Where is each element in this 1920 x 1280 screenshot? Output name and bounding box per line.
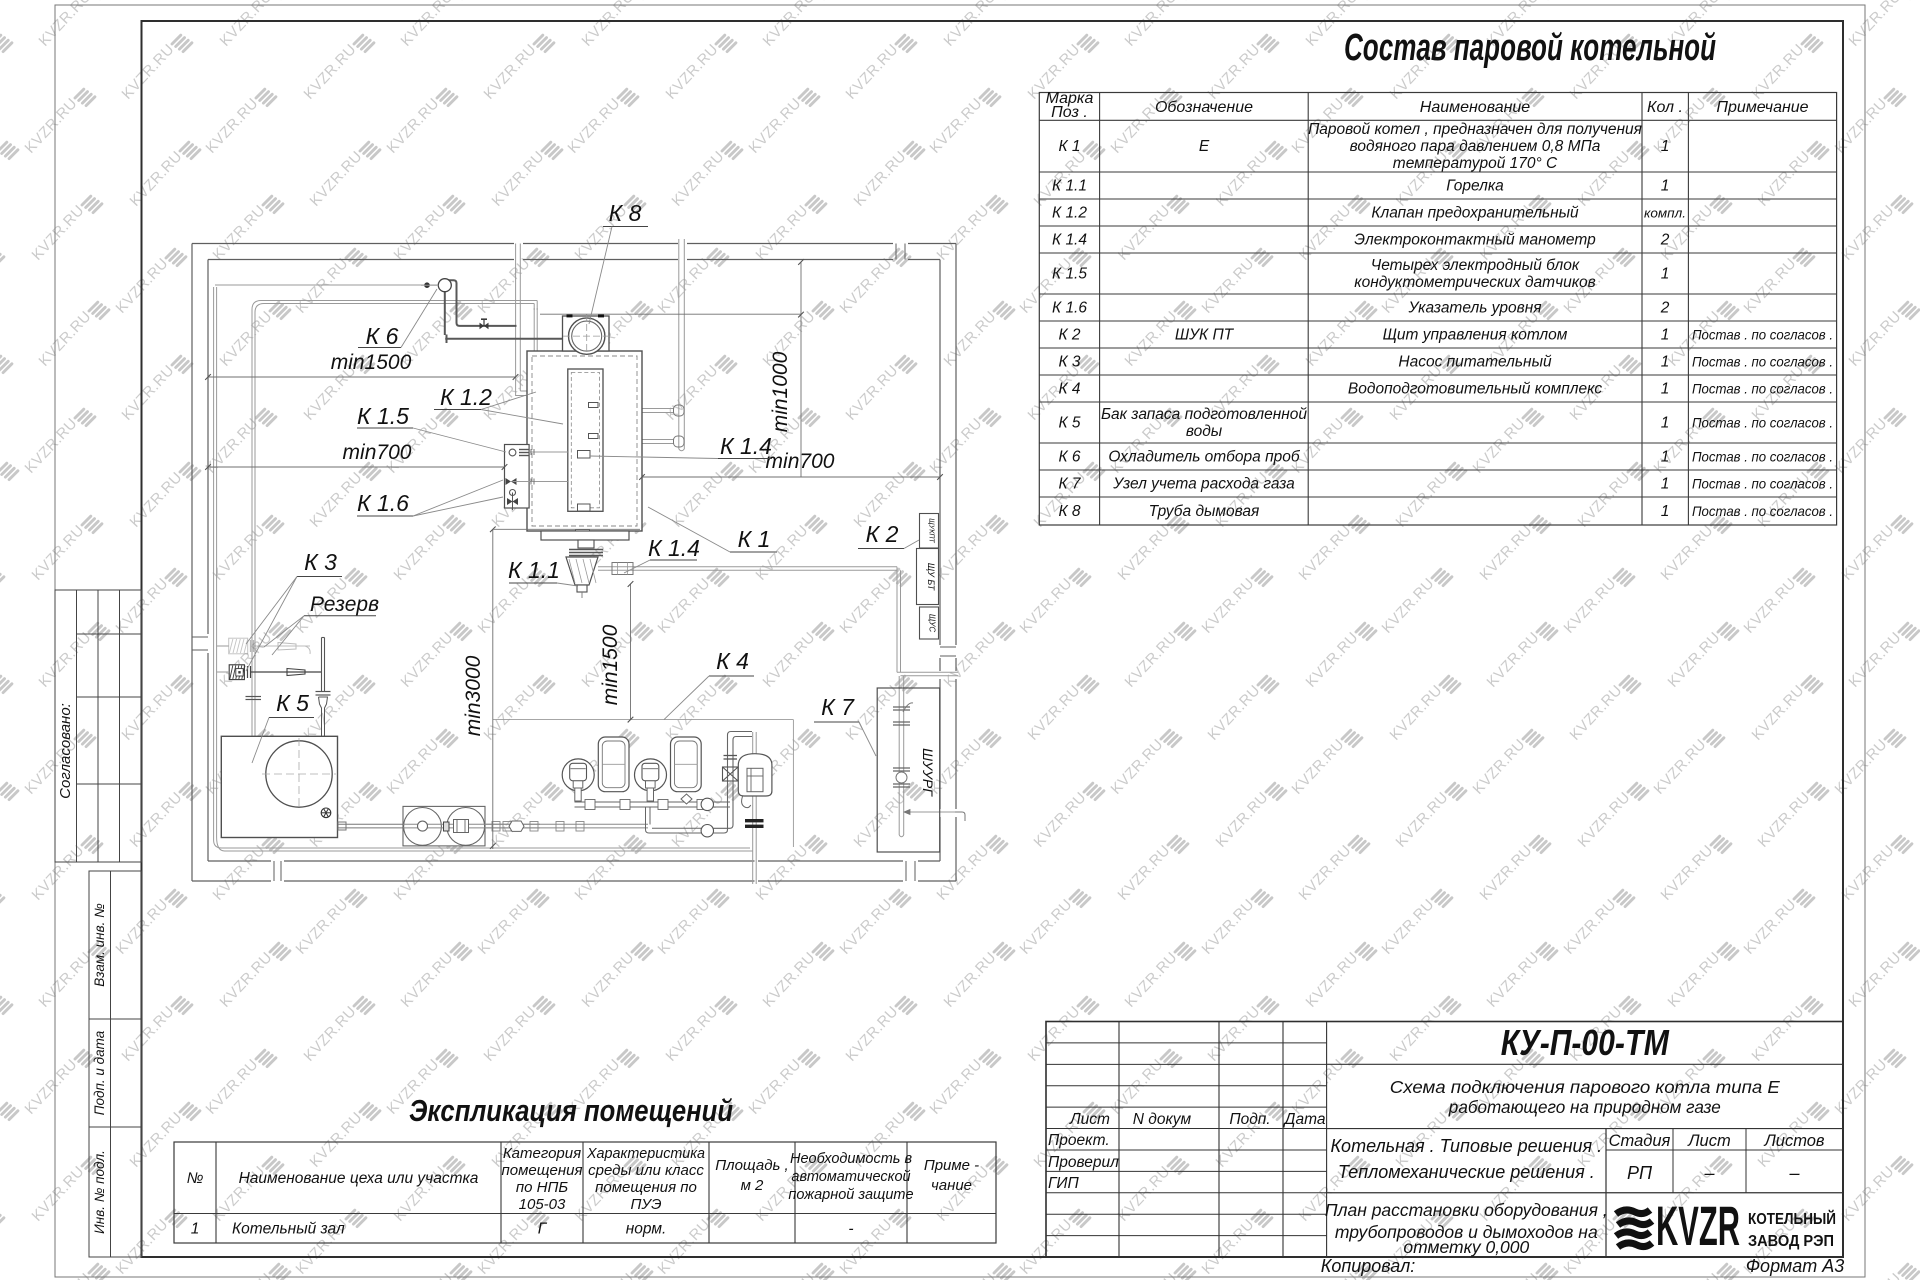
svg-text:KVZR.RU: KVZR.RU: [578, 1270, 637, 1280]
svg-text:Тепломеханические решения .: Тепломеханические решения .: [1338, 1162, 1595, 1182]
svg-text:KVZR.RU: KVZR.RU: [1831, 1056, 1890, 1118]
svg-text:1: 1: [1661, 266, 1670, 283]
svg-text:К 6: К 6: [1058, 449, 1080, 466]
svg-text:Указатель уровня: Указатель уровня: [1407, 300, 1541, 317]
svg-text:Стадия: Стадия: [1609, 1132, 1671, 1150]
svg-text:KVZR.RU: KVZR.RU: [1288, 736, 1347, 798]
svg-text:Постав . по согласов .: Постав . по согласов .: [1692, 450, 1833, 465]
svg-text:KVZR.RU: KVZR.RU: [1754, 148, 1813, 210]
svg-text:К 8: К 8: [1058, 503, 1080, 520]
svg-text:№: №: [187, 1170, 204, 1187]
svg-text:KVZR.RU: KVZR.RU: [1657, 842, 1716, 904]
svg-text:KVZR.RU: KVZR.RU: [126, 1109, 185, 1171]
svg-text:KVZR.RU: KVZR.RU: [1114, 522, 1173, 584]
svg-text:пожарной защите: пожарной защите: [788, 1187, 913, 1203]
svg-text:min1000: min1000: [769, 351, 792, 432]
svg-text:KVZR.RU: KVZR.RU: [662, 362, 721, 424]
svg-text:KVZR.RU: KVZR.RU: [118, 1003, 177, 1065]
svg-text:KVZR.RU: KVZR.RU: [306, 1109, 365, 1171]
svg-text:Поз .: Поз .: [1051, 104, 1088, 121]
svg-text:KVZR.RU: KVZR.RU: [1845, 308, 1904, 370]
svg-text:Лист: Лист: [1687, 1132, 1730, 1150]
svg-text:Лист: Лист: [1069, 1111, 1110, 1128]
svg-text:KVZR.RU: KVZR.RU: [383, 736, 442, 798]
svg-text:KVZR.RU: KVZR.RU: [300, 41, 359, 103]
svg-text:KVZR.RU: KVZR.RU: [1748, 1003, 1807, 1065]
svg-text:Проект.: Проект.: [1048, 1132, 1110, 1149]
svg-text:Труба дымовая: Труба дымовая: [1149, 503, 1260, 520]
svg-text:KVZR.RU: KVZR.RU: [842, 41, 901, 103]
svg-text:KVZR.RU: KVZR.RU: [35, 949, 94, 1011]
svg-text:KVZR.RU: KVZR.RU: [836, 1216, 895, 1278]
svg-text:KVZR.RU: KVZR.RU: [1016, 896, 1075, 958]
svg-text:KVZR.RU: KVZR.RU: [1024, 682, 1083, 744]
svg-text:KVZR.RU: KVZR.RU: [202, 415, 261, 477]
svg-text:KVZR.RU: KVZR.RU: [480, 41, 539, 103]
svg-text:KVZR.RU: KVZR.RU: [662, 41, 721, 103]
svg-text:KVZR.RU: KVZR.RU: [1838, 522, 1897, 584]
svg-text:KVZR.RU: KVZR.RU: [209, 522, 268, 584]
svg-text:К 1.2: К 1.2: [1052, 205, 1087, 222]
svg-text:Схема подключения парового кот: Схема подключения парового котла типа Е: [1390, 1077, 1780, 1097]
svg-text:KVZR.RU: KVZR.RU: [1469, 415, 1528, 477]
svg-text:KVZR.RU: KVZR.RU: [1302, 949, 1361, 1011]
svg-text:KVZR.RU: KVZR.RU: [1574, 148, 1633, 210]
svg-text:-: -: [848, 1220, 853, 1237]
svg-text:Кол .: Кол .: [1647, 99, 1683, 116]
svg-text:KVZR: KVZR: [1656, 1194, 1740, 1257]
svg-text:1: 1: [1661, 138, 1670, 155]
svg-text:KVZR.RU: KVZR.RU: [126, 789, 185, 851]
svg-text:KVZR.RU: KVZR.RU: [488, 148, 547, 210]
svg-text:KVZR.RU: KVZR.RU: [1748, 682, 1807, 744]
svg-text:KVZR.RU: KVZR.RU: [1740, 255, 1799, 317]
svg-text:Насос питательный: Насос питательный: [1398, 354, 1552, 371]
svg-text:KVZR.RU: KVZR.RU: [745, 95, 804, 157]
svg-text:KVZR.RU: KVZR.RU: [1748, 41, 1807, 103]
svg-text:помещения по: помещения по: [595, 1179, 697, 1196]
svg-text:KVZR.RU: KVZR.RU: [397, 949, 456, 1011]
svg-text:Постав . по согласов .: Постав . по согласов .: [1692, 416, 1833, 431]
svg-text:1: 1: [1661, 178, 1670, 195]
svg-text:Инв. № подл.: Инв. № подл.: [92, 1150, 107, 1234]
svg-text:Постав . по согласов .: Постав . по согласов .: [1692, 328, 1833, 343]
svg-text:KVZR.RU: KVZR.RU: [1107, 1056, 1166, 1118]
svg-text:KVZR.RU: KVZR.RU: [474, 575, 533, 637]
svg-text:Формат А3: Формат А3: [1746, 1256, 1845, 1276]
svg-text:KVZR.RU: KVZR.RU: [1386, 1003, 1445, 1065]
svg-text:KVZR.RU: KVZR.RU: [397, 629, 456, 691]
svg-text:Постав . по согласов .: Постав . по согласов .: [1692, 382, 1833, 397]
svg-text:KVZR.RU: KVZR.RU: [1302, 629, 1361, 691]
svg-text:KVZR.RU: KVZR.RU: [35, 0, 94, 50]
svg-text:К 1.1: К 1.1: [508, 557, 560, 583]
svg-text:KVZR.RU: KVZR.RU: [126, 469, 185, 531]
svg-text:KVZR.RU: KVZR.RU: [1198, 575, 1257, 637]
svg-text:Проверил: Проверил: [1048, 1154, 1119, 1171]
svg-text:ЩУС: ЩУС: [928, 614, 937, 632]
svg-text:К 1.4: К 1.4: [648, 535, 700, 561]
svg-text:Взам. инв. №: Взам. инв. №: [92, 903, 107, 987]
svg-text:KVZR.RU: KVZR.RU: [1657, 522, 1716, 584]
svg-text:KVZR.RU: KVZR.RU: [836, 575, 895, 637]
svg-text:KVZR.RU: KVZR.RU: [1392, 469, 1451, 531]
svg-text:KVZR.RU: KVZR.RU: [933, 842, 992, 904]
svg-text:KVZR.RU: KVZR.RU: [1574, 789, 1633, 851]
svg-text:КУ-П-00-ТМ: КУ-П-00-ТМ: [1501, 1022, 1670, 1063]
svg-text:К 1.5: К 1.5: [1052, 266, 1087, 283]
svg-text:KVZR.RU: KVZR.RU: [1845, 0, 1904, 50]
svg-text:KVZR.RU: KVZR.RU: [1212, 789, 1271, 851]
svg-text:ГИП: ГИП: [1048, 1175, 1080, 1192]
svg-text:Подп. и дата: Подп. и дата: [92, 1030, 107, 1115]
svg-text:Электроконтактный манометр: Электроконтактный манометр: [1354, 232, 1596, 249]
svg-text:KVZR.RU: KVZR.RU: [1392, 789, 1451, 851]
svg-text:Резерв: Резерв: [310, 593, 379, 616]
svg-text:К 3: К 3: [1058, 354, 1080, 371]
svg-text:К 1: К 1: [738, 526, 771, 552]
svg-text:KVZR.RU: KVZR.RU: [1204, 682, 1263, 744]
svg-text:KVZR.RU: KVZR.RU: [1740, 575, 1799, 637]
svg-text:min700: min700: [343, 441, 412, 464]
svg-text:Обозначение: Обозначение: [1155, 99, 1253, 116]
svg-text:KVZR.RU: KVZR.RU: [300, 1003, 359, 1065]
svg-text:Постав . по согласов .: Постав . по согласов .: [1692, 504, 1833, 519]
svg-text:Копировал:: Копировал:: [1321, 1256, 1416, 1276]
svg-text:KVZR.RU: KVZR.RU: [1107, 415, 1166, 477]
svg-text:Состав паровой котельной: Состав паровой котельной: [1344, 27, 1716, 69]
svg-text:KVZR.RU: KVZR.RU: [209, 202, 268, 264]
svg-text:KVZR.RU: KVZR.RU: [578, 0, 637, 50]
svg-text:–: –: [1788, 1163, 1800, 1183]
svg-text:KVZR.RU: KVZR.RU: [390, 522, 449, 584]
svg-text:1: 1: [1661, 476, 1670, 493]
svg-text:К 8: К 8: [609, 200, 642, 226]
svg-text:Приме -: Приме -: [924, 1157, 979, 1174]
svg-text:воды: воды: [1186, 423, 1223, 440]
svg-text:К 3: К 3: [304, 549, 337, 575]
svg-text:KVZR.RU: KVZR.RU: [118, 41, 177, 103]
svg-text:min1500: min1500: [331, 351, 412, 374]
svg-text:KVZR.RU: KVZR.RU: [0, 148, 4, 210]
svg-text:KVZR.RU: KVZR.RU: [752, 842, 811, 904]
svg-text:по НПБ: по НПБ: [516, 1179, 568, 1196]
svg-text:KVZR.RU: KVZR.RU: [28, 202, 87, 264]
svg-text:KVZR.RU: KVZR.RU: [202, 1056, 261, 1118]
svg-text:Листов: Листов: [1763, 1132, 1824, 1150]
svg-text:KVZR.RU: KVZR.RU: [216, 0, 275, 50]
svg-text:КОТЕЛЬНЫЙ: КОТЕЛЬНЫЙ: [1748, 1210, 1836, 1228]
svg-text:К 1.6: К 1.6: [1052, 300, 1087, 317]
svg-text:К 1.4: К 1.4: [1052, 232, 1087, 249]
svg-text:температурой 170° С: температурой 170° С: [1393, 155, 1558, 172]
svg-text:Е: Е: [1199, 138, 1210, 155]
svg-text:KVZR.RU: KVZR.RU: [1295, 202, 1354, 264]
svg-text:м 2: м 2: [741, 1177, 764, 1194]
svg-text:KVZR.RU: KVZR.RU: [933, 522, 992, 584]
svg-text:KVZR.RU: KVZR.RU: [940, 308, 999, 370]
svg-text:отметку 0,000: отметку 0,000: [1403, 1237, 1529, 1257]
svg-text:Постав . по согласов .: Постав . по согласов .: [1692, 355, 1833, 370]
svg-text:Г: Г: [538, 1220, 548, 1237]
svg-text:KVZR.RU: KVZR.RU: [668, 469, 727, 531]
svg-text:KVZR.RU: KVZR.RU: [1838, 842, 1897, 904]
svg-text:Охладитель отбора проб: Охладитель отбора проб: [1108, 449, 1300, 466]
svg-text:KVZR.RU: KVZR.RU: [216, 1270, 275, 1280]
svg-text:KVZR.RU: KVZR.RU: [0, 469, 4, 531]
svg-text:KVZR.RU: KVZR.RU: [1121, 629, 1180, 691]
svg-text:KVZR.RU: KVZR.RU: [1483, 629, 1542, 691]
svg-text:К 7: К 7: [821, 694, 855, 720]
svg-text:KVZR.RU: KVZR.RU: [1198, 896, 1257, 958]
svg-text:KVZR.RU: KVZR.RU: [1114, 842, 1173, 904]
svg-text:KVZR.RU: KVZR.RU: [564, 95, 623, 157]
svg-text:1: 1: [1661, 415, 1670, 432]
svg-text:KVZR.RU: KVZR.RU: [668, 789, 727, 851]
svg-text:компл.: компл.: [1644, 206, 1686, 221]
svg-text:К 4: К 4: [1058, 381, 1080, 398]
svg-text:KVZR.RU: KVZR.RU: [1483, 1270, 1542, 1280]
svg-text:KVZR.RU: KVZR.RU: [836, 255, 895, 317]
svg-text:KVZR.RU: KVZR.RU: [1740, 896, 1799, 958]
svg-text:KVZR.RU: KVZR.RU: [1030, 789, 1089, 851]
svg-text:KVZR.RU: KVZR.RU: [118, 682, 177, 744]
svg-text:KVZR.RU: KVZR.RU: [1664, 629, 1723, 691]
svg-text:Котельная . Типовые решения .: Котельная . Типовые решения .: [1330, 1136, 1602, 1156]
svg-text:Наименование: Наименование: [1420, 99, 1531, 116]
svg-text:KVZR.RU: KVZR.RU: [1378, 896, 1437, 958]
svg-text:KVZR.RU: KVZR.RU: [35, 629, 94, 691]
svg-text:KVZR.RU: KVZR.RU: [1831, 415, 1890, 477]
svg-text:KVZR.RU: KVZR.RU: [1560, 896, 1619, 958]
svg-text:ЩУ БТ: ЩУ БТ: [926, 563, 936, 592]
svg-text:1: 1: [191, 1220, 200, 1237]
svg-text:KVZR.RU: KVZR.RU: [21, 415, 80, 477]
svg-text:KVZR.RU: KVZR.RU: [759, 949, 818, 1011]
svg-text:KVZR.RU: KVZR.RU: [1664, 1270, 1723, 1280]
svg-text:KVZR.RU: KVZR.RU: [1664, 949, 1723, 1011]
svg-text:min3000: min3000: [462, 655, 485, 736]
svg-text:К 2: К 2: [866, 521, 899, 547]
svg-text:KVZR.RU: KVZR.RU: [488, 789, 547, 851]
svg-text:KVZR.RU: KVZR.RU: [1386, 682, 1445, 744]
svg-text:KVZR.RU: KVZR.RU: [474, 255, 533, 317]
svg-text:1: 1: [1661, 449, 1670, 466]
svg-text:KVZR.RU: KVZR.RU: [1560, 575, 1619, 637]
svg-text:KVZR.RU: KVZR.RU: [1114, 1163, 1173, 1225]
svg-text:KVZR.RU: KVZR.RU: [383, 95, 442, 157]
svg-text:KVZR.RU: KVZR.RU: [28, 1163, 87, 1225]
svg-text:KVZR.RU: KVZR.RU: [1469, 736, 1528, 798]
svg-text:KVZR.RU: KVZR.RU: [1754, 789, 1813, 851]
svg-text:KVZR.RU: KVZR.RU: [28, 522, 87, 584]
svg-text:К 4: К 4: [716, 648, 749, 674]
svg-text:KVZR.RU: KVZR.RU: [397, 1270, 456, 1280]
svg-text:норм.: норм.: [626, 1220, 667, 1237]
svg-text:KVZR.RU: KVZR.RU: [1016, 575, 1075, 637]
svg-text:KVZR.RU: KVZR.RU: [1378, 575, 1437, 637]
svg-text:Горелка: Горелка: [1446, 178, 1504, 195]
svg-text:Постав . по согласов .: Постав . по согласов .: [1692, 477, 1833, 492]
svg-text:KVZR.RU: KVZR.RU: [1476, 522, 1535, 584]
svg-text:KVZR.RU: KVZR.RU: [0, 1109, 4, 1171]
svg-text:KVZR.RU: KVZR.RU: [1114, 202, 1173, 264]
svg-text:KVZR.RU: KVZR.RU: [480, 682, 539, 744]
svg-text:К 6: К 6: [366, 323, 399, 349]
svg-text:К 7: К 7: [1058, 476, 1081, 493]
svg-text:KVZR.RU: KVZR.RU: [1198, 255, 1257, 317]
svg-text:KVZR.RU: KVZR.RU: [752, 202, 811, 264]
svg-text:N докум: N докум: [1133, 1111, 1192, 1128]
svg-text:KVZR.RU: KVZR.RU: [1845, 629, 1904, 691]
svg-text:ЗАВОД РЭП: ЗАВОД РЭП: [1748, 1233, 1834, 1250]
svg-text:KVZR.RU: KVZR.RU: [1483, 949, 1542, 1011]
svg-text:К 1.4: К 1.4: [720, 433, 772, 459]
svg-text:KVZR.RU: KVZR.RU: [1476, 842, 1535, 904]
svg-text:KVZR.RU: KVZR.RU: [1107, 736, 1166, 798]
svg-text:К 1.1: К 1.1: [1052, 178, 1087, 195]
svg-text:KVZR.RU: KVZR.RU: [654, 896, 713, 958]
svg-text:KVZR.RU: KVZR.RU: [202, 95, 261, 157]
svg-text:ЩУКПТ: ЩУКПТ: [928, 518, 935, 543]
svg-text:KVZR.RU: KVZR.RU: [0, 789, 4, 851]
svg-text:1: 1: [1661, 327, 1670, 344]
svg-text:KVZR.RU: KVZR.RU: [1650, 736, 1709, 798]
svg-text:работающего на природном газе: работающего на природном газе: [1448, 1097, 1721, 1117]
svg-text:KVZR.RU: KVZR.RU: [1845, 1270, 1904, 1280]
svg-text:Подп.: Подп.: [1229, 1111, 1270, 1128]
svg-text:Водоподготовительный комплекс: Водоподготовительный комплекс: [1348, 381, 1602, 398]
svg-text:KVZR.RU: KVZR.RU: [926, 1056, 985, 1118]
svg-text:К 1.2: К 1.2: [440, 384, 492, 410]
svg-text:ПУЭ: ПУЭ: [630, 1196, 661, 1213]
svg-text:KVZR.RU: KVZR.RU: [836, 896, 895, 958]
svg-text:KVZR.RU: KVZR.RU: [397, 0, 456, 50]
svg-text:KVZR.RU: KVZR.RU: [1121, 308, 1180, 370]
svg-text:Примечание: Примечание: [1716, 99, 1808, 116]
svg-text:К 5: К 5: [276, 690, 309, 716]
svg-text:Характеристика: Характеристика: [586, 1145, 705, 1162]
svg-text:Бак запаса подготовленной: Бак запаса подготовленной: [1101, 406, 1307, 423]
svg-text:Площадь ,: Площадь ,: [715, 1157, 788, 1174]
svg-text:KVZR.RU: KVZR.RU: [35, 1270, 94, 1280]
svg-text:KVZR.RU: KVZR.RU: [1831, 95, 1890, 157]
svg-text:чание: чание: [931, 1177, 972, 1194]
svg-text:KVZR.RU: KVZR.RU: [842, 1003, 901, 1065]
svg-text:KVZR.RU: KVZR.RU: [292, 255, 351, 317]
svg-text:Узел учета расхода газа: Узел учета расхода газа: [1112, 476, 1295, 493]
svg-text:KVZR.RU: KVZR.RU: [1566, 682, 1625, 744]
svg-text:KVZR.RU: KVZR.RU: [28, 842, 87, 904]
svg-text:ШУК ПТ: ШУК ПТ: [1175, 327, 1235, 344]
svg-text:min1500: min1500: [599, 624, 622, 705]
svg-text:KVZR.RU: KVZR.RU: [1204, 1003, 1263, 1065]
svg-text:К 1.5: К 1.5: [357, 403, 409, 429]
svg-text:KVZR.RU: KVZR.RU: [1288, 415, 1347, 477]
svg-text:KVZR.RU: KVZR.RU: [216, 949, 275, 1011]
svg-text:К 2: К 2: [1058, 327, 1080, 344]
svg-text:KVZR.RU: KVZR.RU: [126, 148, 185, 210]
svg-text:KVZR.RU: KVZR.RU: [390, 202, 449, 264]
svg-text:KVZR.RU: KVZR.RU: [1198, 1216, 1257, 1278]
svg-text:KVZR.RU: KVZR.RU: [1295, 842, 1354, 904]
svg-text:KVZR.RU: KVZR.RU: [1121, 949, 1180, 1011]
svg-text:KVZR.RU: KVZR.RU: [940, 949, 999, 1011]
svg-text:1: 1: [1661, 354, 1670, 371]
svg-text:KVZR.RU: KVZR.RU: [759, 629, 818, 691]
svg-text:KVZR.RU: KVZR.RU: [35, 308, 94, 370]
svg-text:Паровой котел , предназначен д: Паровой котел , предназначен для получен…: [1308, 121, 1642, 138]
svg-text:KVZR.RU: KVZR.RU: [1121, 0, 1180, 50]
svg-text:KVZR.RU: KVZR.RU: [578, 949, 637, 1011]
svg-text:KVZR.RU: KVZR.RU: [474, 1216, 533, 1278]
svg-text:KVZR.RU: KVZR.RU: [1288, 1056, 1347, 1118]
svg-text:KVZR.RU: KVZR.RU: [668, 148, 727, 210]
svg-text:Согласовано:: Согласовано:: [57, 703, 74, 799]
svg-text:Щит управления котлом: Щит управления котлом: [1383, 327, 1568, 344]
svg-text:KVZR.RU: KVZR.RU: [759, 0, 818, 50]
svg-text:KVZR.RU: KVZR.RU: [1212, 148, 1271, 210]
svg-text:автоматической: автоматической: [791, 1169, 910, 1185]
svg-text:KVZR.RU: KVZR.RU: [118, 362, 177, 424]
svg-text:KVZR.RU: KVZR.RU: [850, 148, 909, 210]
svg-text:KVZR.RU: KVZR.RU: [940, 1270, 999, 1280]
svg-text:KVZR.RU: KVZR.RU: [1295, 522, 1354, 584]
svg-text:KVZR.RU: KVZR.RU: [1121, 1270, 1180, 1280]
svg-text:KVZR.RU: KVZR.RU: [1024, 1003, 1083, 1065]
svg-text:среды или класс: среды или класс: [588, 1162, 704, 1179]
svg-text:min700: min700: [766, 450, 835, 473]
svg-text:РП: РП: [1627, 1163, 1653, 1183]
svg-text:Экспликация помещений: Экспликация помещений: [409, 1093, 733, 1128]
svg-text:Необходимость в: Необходимость в: [790, 1151, 912, 1167]
svg-text:KVZR.RU: KVZR.RU: [745, 1056, 804, 1118]
svg-text:KVZR.RU: KVZR.RU: [940, 0, 999, 50]
svg-text:KVZR.RU: KVZR.RU: [1838, 202, 1897, 264]
svg-text:К 1.6: К 1.6: [357, 490, 409, 516]
svg-text:KVZR.RU: KVZR.RU: [474, 896, 533, 958]
svg-text:KVZR.RU: KVZR.RU: [480, 1003, 539, 1065]
svg-text:–: –: [1703, 1163, 1715, 1183]
svg-text:KVZR.RU: KVZR.RU: [933, 202, 992, 264]
svg-text:105-03: 105-03: [519, 1196, 566, 1213]
svg-text:KVZR.RU: KVZR.RU: [1831, 736, 1890, 798]
svg-text:1: 1: [1661, 381, 1670, 398]
svg-text:KVZR.RU: KVZR.RU: [292, 896, 351, 958]
svg-text:KVZR.RU: KVZR.RU: [759, 1270, 818, 1280]
svg-text:2: 2: [1660, 300, 1670, 317]
svg-text:KVZR.RU: KVZR.RU: [21, 95, 80, 157]
svg-text:KVZR.RU: KVZR.RU: [1302, 308, 1361, 370]
svg-text:К 5: К 5: [1058, 415, 1080, 432]
svg-text:KVZR.RU: KVZR.RU: [216, 308, 275, 370]
svg-text:KVZR.RU: KVZR.RU: [1838, 1163, 1897, 1225]
svg-text:водяного пара давлением 0,8: водяного пара давлением 0,8 МПа: [1350, 138, 1601, 155]
svg-text:KVZR.RU: KVZR.RU: [850, 789, 909, 851]
svg-text:Котельный зал: Котельный зал: [232, 1220, 345, 1237]
svg-text:Четырех электродный блок: Четырех электродный блок: [1371, 257, 1580, 274]
svg-text:KVZR.RU: KVZR.RU: [1574, 469, 1633, 531]
svg-text:Категория: Категория: [503, 1145, 581, 1162]
svg-text:KVZR.RU: KVZR.RU: [926, 95, 985, 157]
svg-text:KVZR.RU: KVZR.RU: [654, 575, 713, 637]
svg-text:KVZR.RU: KVZR.RU: [1204, 41, 1263, 103]
svg-text:кондуктометрических датчиков: кондуктометрических датчиков: [1354, 274, 1596, 291]
svg-text:Дата: Дата: [1283, 1111, 1326, 1128]
svg-text:Наименование цеха или участка: Наименование цеха или участка: [239, 1170, 479, 1187]
svg-text:помещения: помещения: [502, 1162, 583, 1179]
svg-text:KVZR.RU: KVZR.RU: [662, 1003, 721, 1065]
